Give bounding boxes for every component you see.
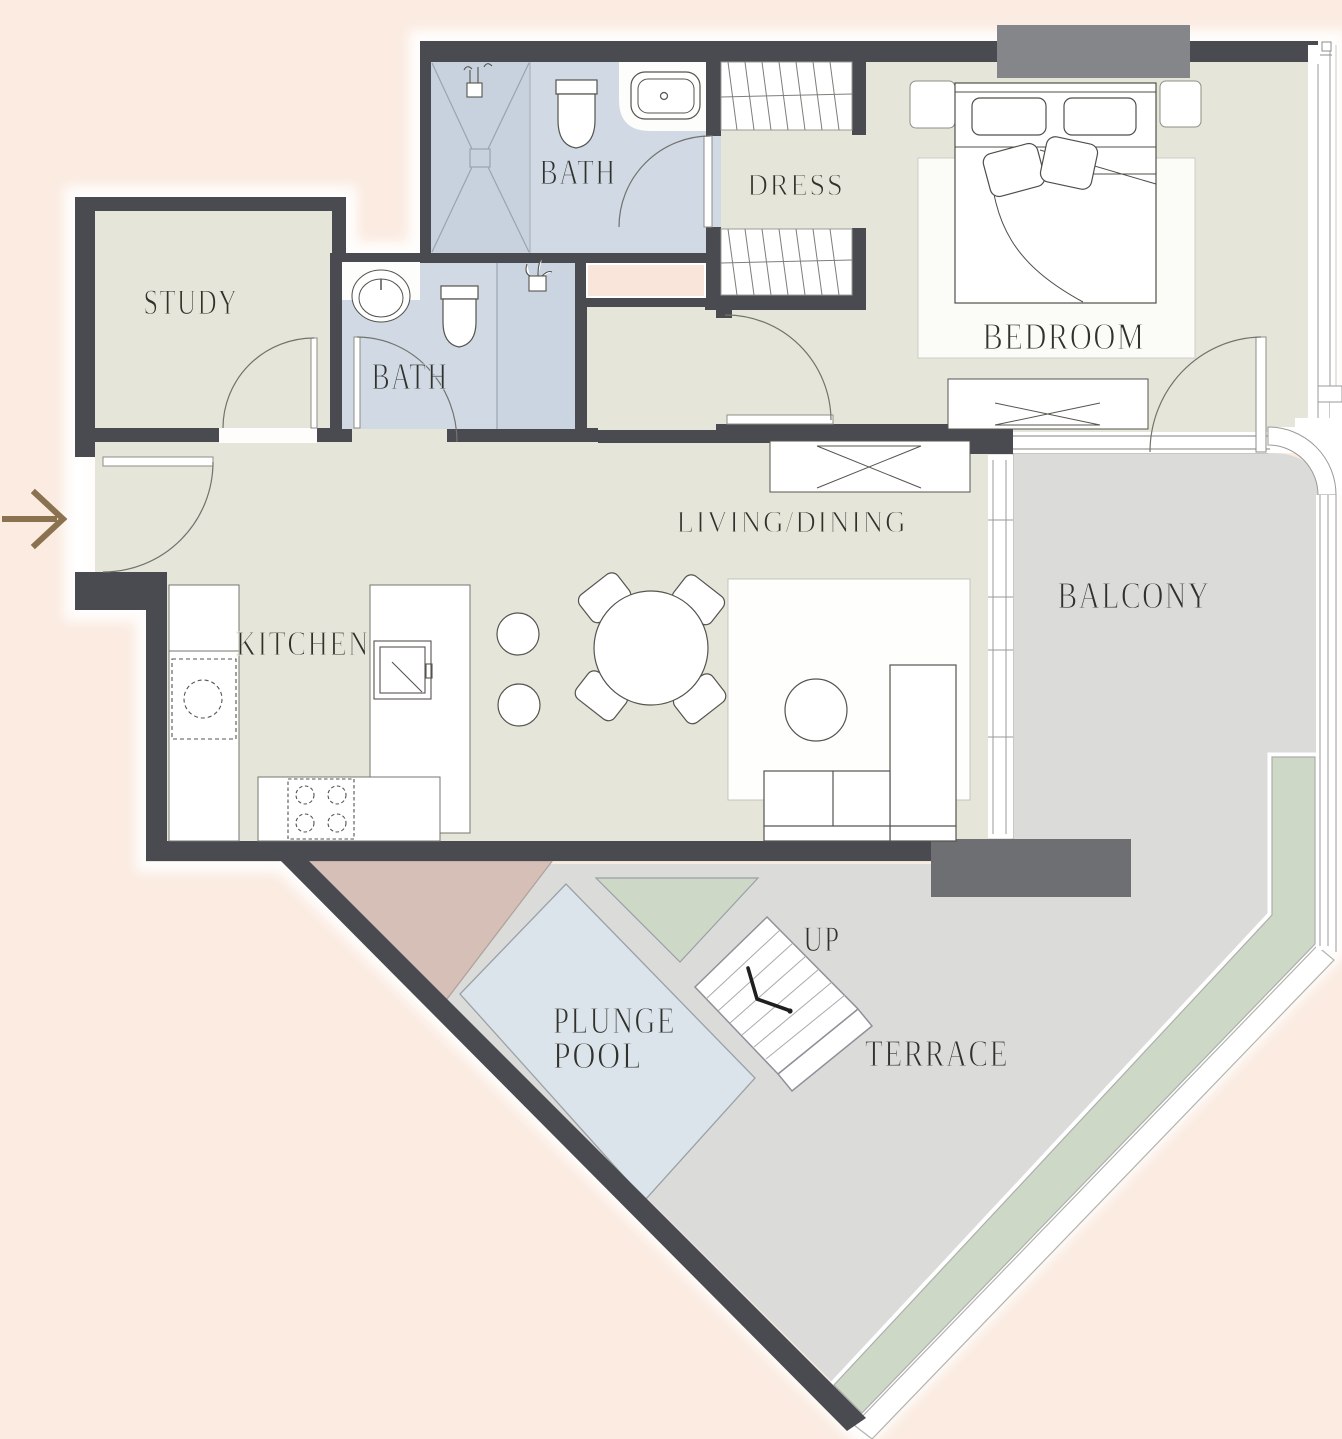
svg-text:DRESS: DRESS (748, 167, 845, 202)
svg-text:TERRACE: TERRACE (865, 1033, 1009, 1075)
svg-text:BATH: BATH (372, 356, 449, 398)
svg-text:BEDROOM: BEDROOM (983, 316, 1146, 358)
svg-text:LIVING/DINING: LIVING/DINING (677, 504, 908, 539)
svg-text:POOL: POOL (553, 1035, 643, 1077)
svg-text:BALCONY: BALCONY (1058, 575, 1211, 617)
svg-text:KITCHEN: KITCHEN (236, 624, 370, 663)
svg-text:BATH: BATH (540, 152, 617, 192)
svg-text:STUDY: STUDY (144, 282, 239, 322)
svg-text:UP: UP (804, 919, 841, 959)
